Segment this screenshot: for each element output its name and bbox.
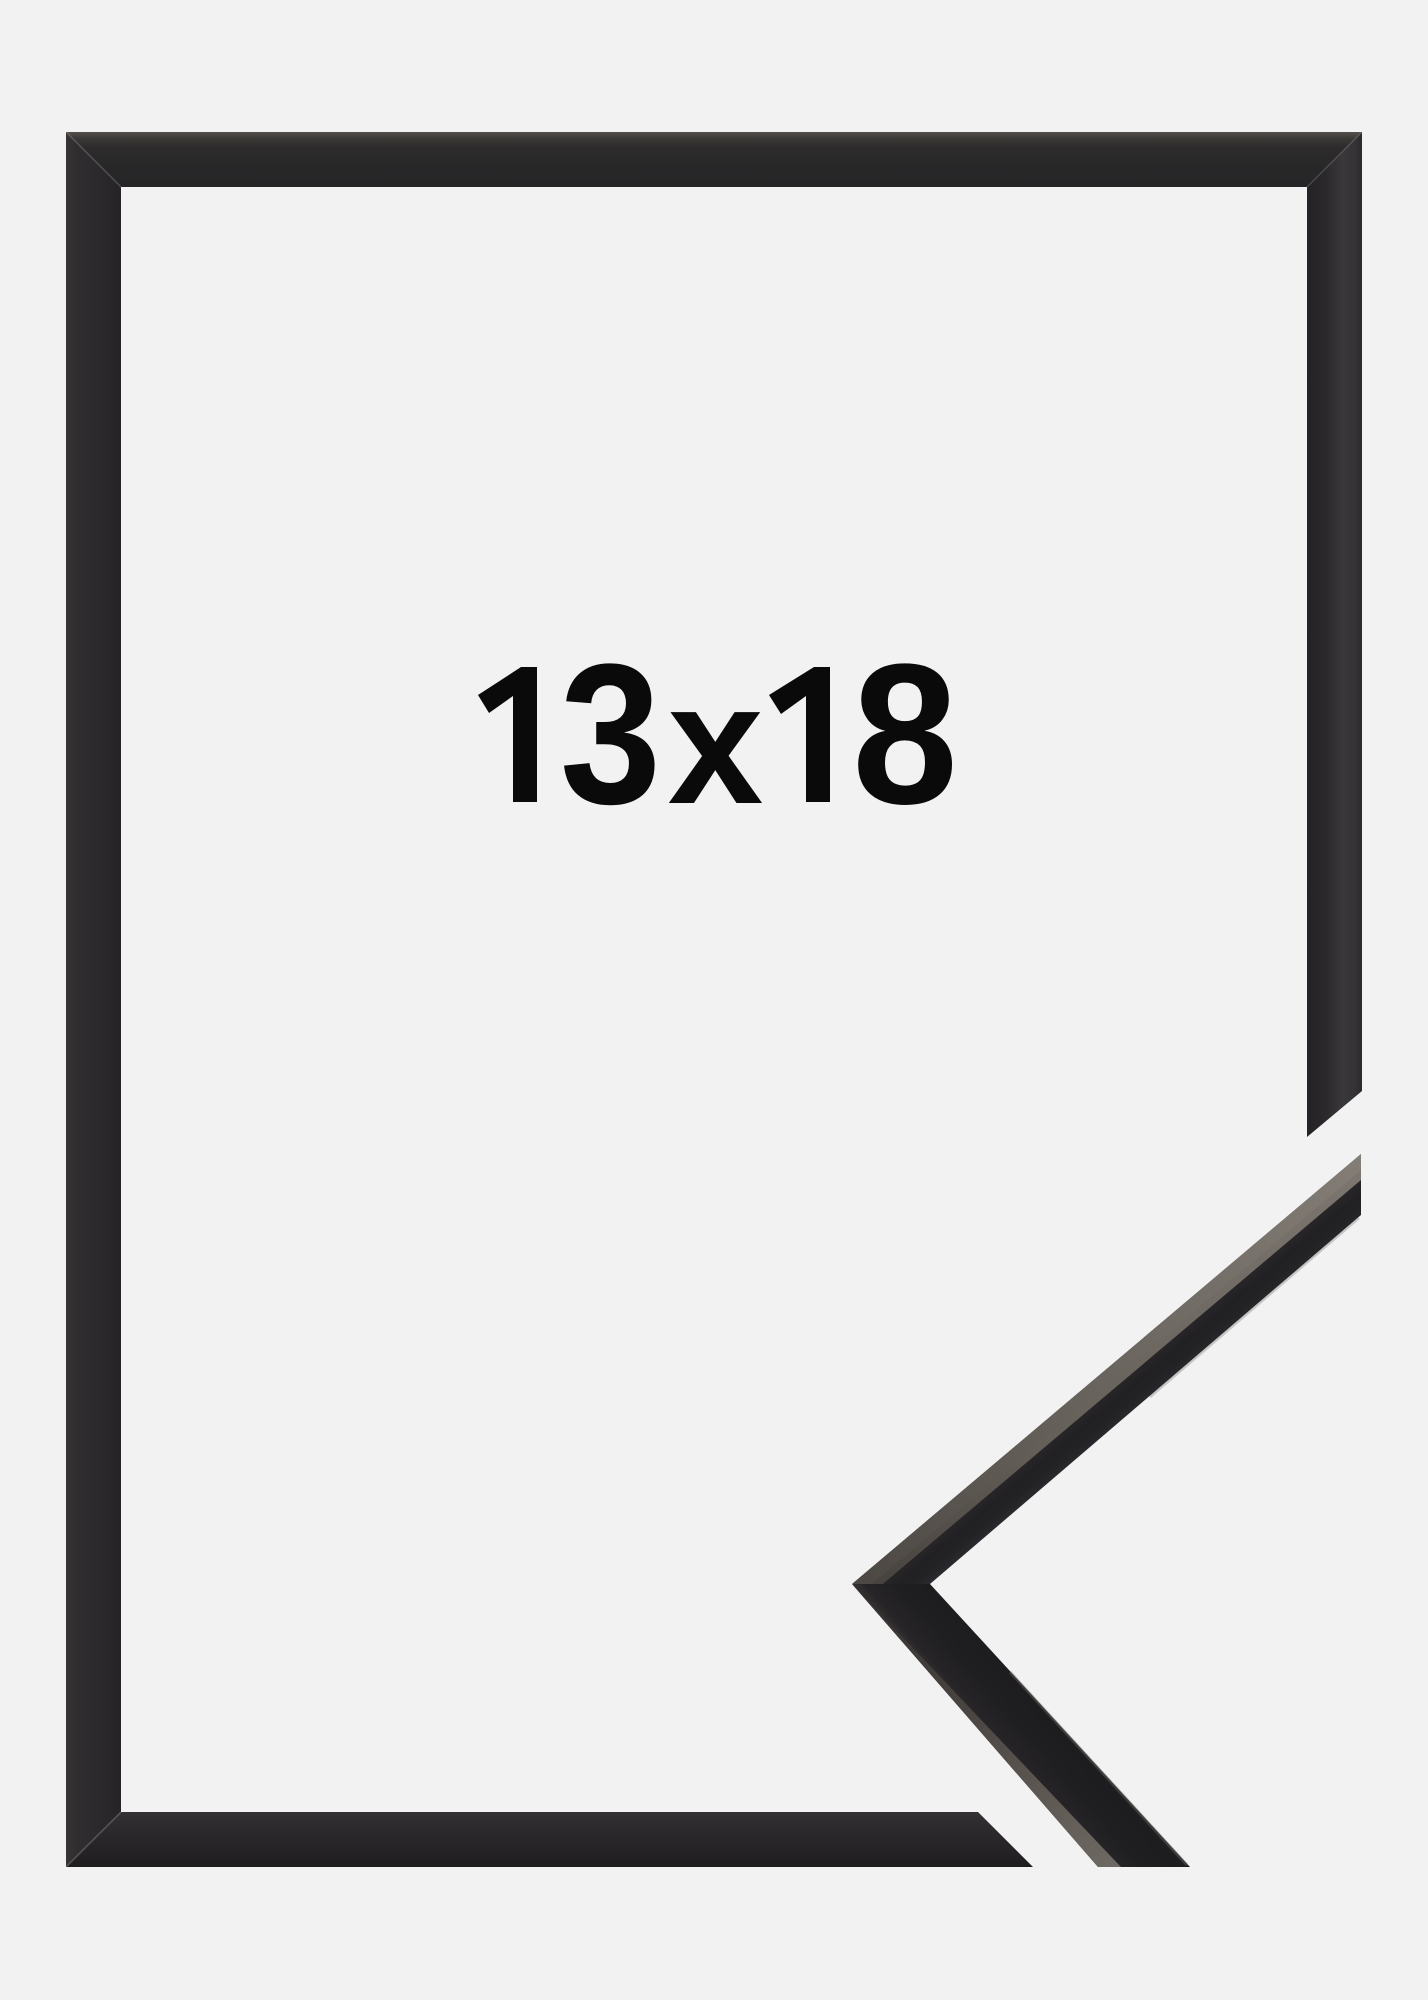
svg-text:8: 8 bbox=[852, 623, 958, 847]
svg-text:3: 3 bbox=[560, 622, 661, 846]
svg-text:x: x bbox=[668, 648, 764, 840]
